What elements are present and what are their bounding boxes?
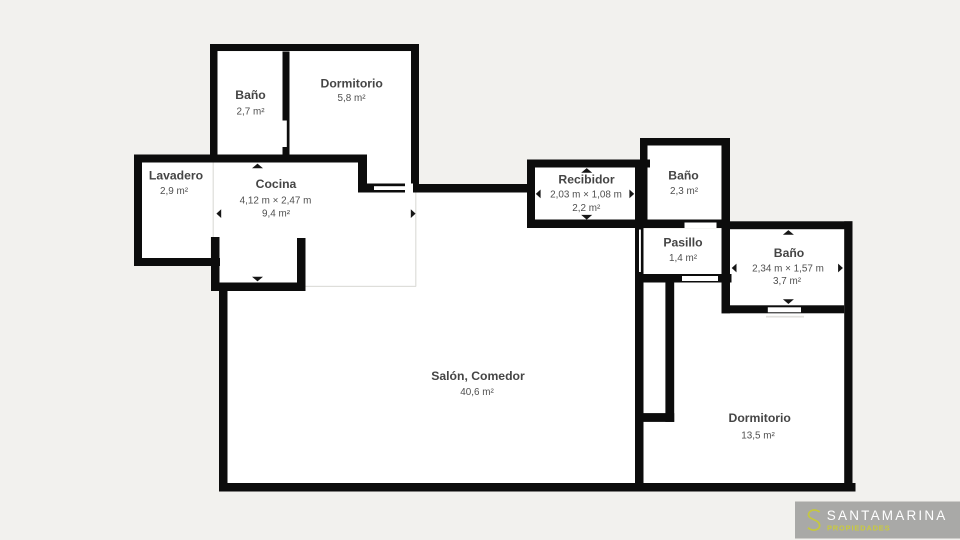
svg-text:13,5 m²: 13,5 m² — [741, 430, 775, 441]
svg-text:2,03 m × 1,08 m: 2,03 m × 1,08 m — [550, 190, 622, 201]
svg-text:Salón, Comedor: Salón, Comedor — [431, 369, 525, 383]
svg-text:2,9 m²: 2,9 m² — [160, 186, 189, 197]
svg-text:Baño: Baño — [668, 169, 698, 183]
svg-text:4,12 m × 2,47 m: 4,12 m × 2,47 m — [240, 195, 312, 206]
svg-text:2,7 m²: 2,7 m² — [237, 107, 266, 118]
svg-text:2,2 m²: 2,2 m² — [572, 203, 601, 214]
svg-text:3,7 m²: 3,7 m² — [773, 276, 802, 287]
svg-text:SANTAMARINA: SANTAMARINA — [827, 508, 948, 523]
svg-text:PROPIEDADES: PROPIEDADES — [827, 524, 890, 533]
svg-text:2,3 m²: 2,3 m² — [670, 186, 699, 197]
svg-text:2,34 m × 1,57 m: 2,34 m × 1,57 m — [752, 264, 824, 275]
svg-text:Lavadero: Lavadero — [149, 169, 203, 183]
svg-text:Dormitorio: Dormitorio — [729, 411, 791, 425]
svg-text:Recibidor: Recibidor — [558, 172, 614, 186]
svg-text:Cocina: Cocina — [256, 177, 297, 191]
svg-text:9,4 m²: 9,4 m² — [262, 209, 291, 220]
svg-text:Pasillo: Pasillo — [663, 236, 702, 250]
svg-text:40,6 m²: 40,6 m² — [460, 387, 494, 398]
svg-text:1,4 m²: 1,4 m² — [669, 253, 698, 264]
svg-text:Dormitorio: Dormitorio — [321, 76, 383, 90]
svg-text:Baño: Baño — [235, 88, 265, 102]
svg-text:Baño: Baño — [774, 246, 804, 260]
svg-text:5,8 m²: 5,8 m² — [338, 93, 367, 104]
